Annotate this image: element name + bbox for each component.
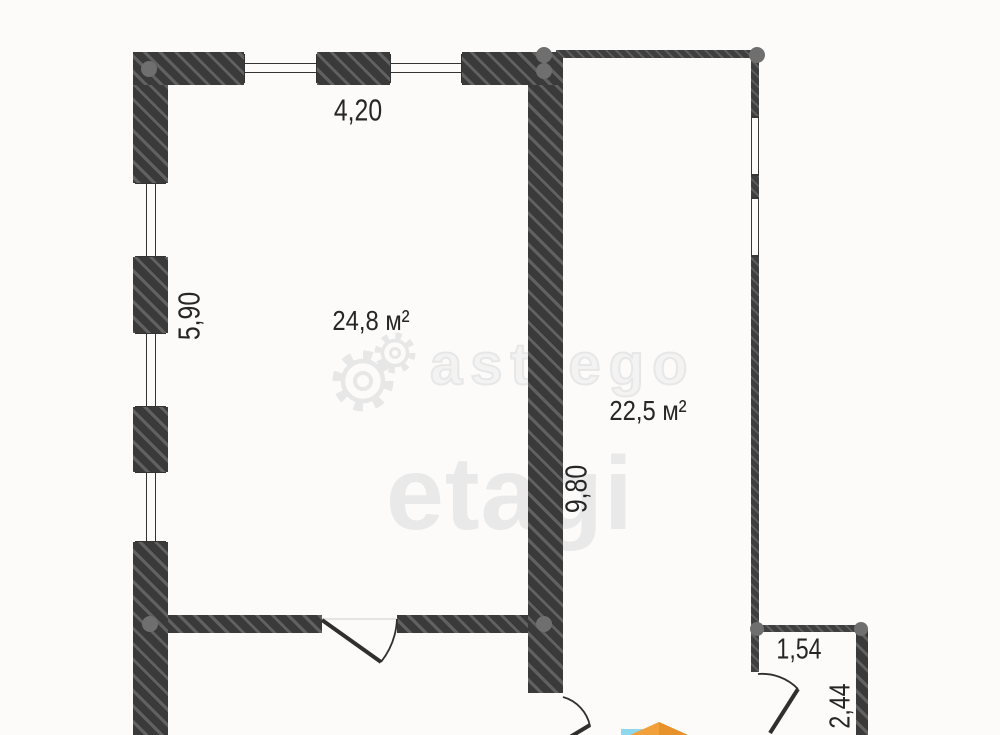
- window-left-3: [133, 472, 168, 542]
- wall-top-right-thin: [556, 50, 757, 58]
- wall-interior-bottom-left-segment: [168, 615, 322, 633]
- wall-small-room-top: [755, 625, 862, 632]
- room-area-label-1: 24,8 м²: [332, 307, 409, 335]
- dimension-right-room-height: 9,80: [561, 465, 592, 513]
- wall-small-room-right: [856, 628, 868, 735]
- room-area-label-2: 22,5 м²: [609, 397, 686, 425]
- window-top-2: [390, 52, 462, 85]
- dimension-small-room-height: 2,44: [827, 683, 856, 728]
- window-left-1: [133, 183, 168, 257]
- corner-dot: [536, 47, 552, 63]
- corner-dot: [536, 616, 552, 632]
- corner-dot: [749, 47, 765, 63]
- window-right-1: [751, 116, 759, 176]
- dimension-small-room-width: 1,54: [776, 636, 821, 665]
- dimension-left-height: 5,90: [174, 292, 205, 340]
- wall-middle: [528, 85, 563, 693]
- wall-interior-bottom-right-segment: [397, 615, 528, 633]
- wall-top: [133, 52, 563, 85]
- window-left-2: [133, 333, 168, 407]
- corner-dot: [750, 622, 764, 636]
- window-top-1: [244, 52, 317, 85]
- corner-dot: [141, 61, 157, 77]
- corner-dot: [142, 616, 158, 632]
- dimension-top-width: 4,20: [334, 95, 382, 126]
- corner-dot: [536, 63, 552, 79]
- window-right-2: [751, 197, 759, 257]
- watermark-etagi: etagi: [386, 442, 634, 546]
- floor-plan: astrego etagi: [0, 0, 1000, 735]
- corner-dot: [854, 622, 868, 636]
